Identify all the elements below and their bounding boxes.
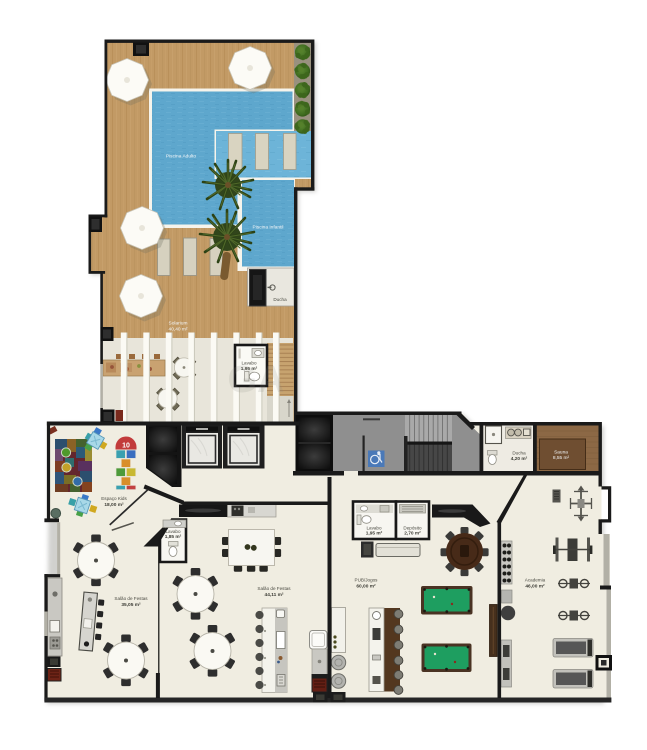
svg-text:8,55 m²: 8,55 m² [553,455,570,461]
svg-text:1,95 m²: 1,95 m² [366,531,383,537]
svg-text:Lavabo: Lavabo [165,529,181,534]
svg-text:Piscina Adulto: Piscina Adulto [166,154,196,160]
svg-text:40,40 m²: 40,40 m² [169,327,188,333]
svg-text:18,00 m²: 18,00 m² [104,502,124,508]
svg-text:60,00 m²: 60,00 m² [356,584,376,590]
svg-text:Lavabo: Lavabo [366,526,382,531]
svg-text:GA: GA [228,359,285,401]
svg-text:35,05 m²: 35,05 m² [121,602,141,608]
svg-text:2,70 m²: 2,70 m² [404,531,421,537]
svg-text:4,20 m²: 4,20 m² [511,456,528,462]
svg-text:Ducha: Ducha [512,451,526,456]
svg-text:Solarium: Solarium [169,321,188,327]
svg-text:Piscina Infantil: Piscina Infantil [253,225,284,231]
svg-text:46,00 m²: 46,00 m² [525,584,545,590]
svg-text:PUB/Jogos: PUB/Jogos [355,578,379,583]
svg-text:44,11 m²: 44,11 m² [265,592,284,598]
svg-text:Espaço Kids: Espaço Kids [101,496,127,501]
svg-text:Academia: Academia [525,578,546,583]
svg-text:Ducha: Ducha [273,297,287,302]
svg-text:Salão de Festas: Salão de Festas [114,596,148,601]
svg-text:Salão de Festas: Salão de Festas [257,586,291,591]
svg-text:10: 10 [122,443,130,450]
svg-text:Sauna: Sauna [554,450,568,456]
svg-text:Depósito: Depósito [403,526,422,531]
svg-text:1,85 m²: 1,85 m² [165,534,182,540]
